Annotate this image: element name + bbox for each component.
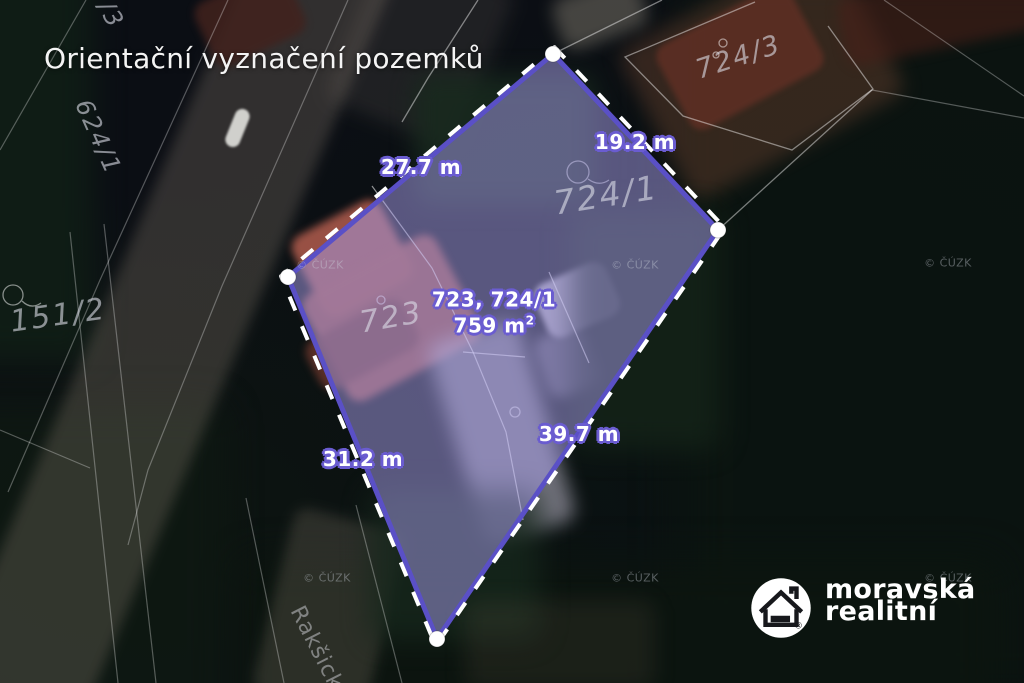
plot-area-text: 759 m2 xyxy=(432,311,556,337)
cuzk-watermark: © ČÚZK xyxy=(303,572,351,585)
cuzk-watermark: © ČÚZK xyxy=(924,257,972,270)
measurement-label-top-left: 27.7 m xyxy=(381,155,461,179)
map-canvas: Orientační vyznačení pozemků /3624/1151/… xyxy=(0,0,1024,683)
registered-mark: ® xyxy=(794,622,803,632)
house-logo-icon: ® xyxy=(750,577,812,639)
cuzk-watermark: © ČÚZK xyxy=(611,572,659,585)
vertex-dot xyxy=(545,46,561,62)
vertex-dot xyxy=(280,269,296,285)
agency-logo: ® moravská realitní xyxy=(750,577,975,639)
cuzk-watermark: © ČÚZK xyxy=(296,259,344,272)
measurement-label-left: 31.2 m xyxy=(323,447,403,471)
vertex-dot xyxy=(710,222,726,238)
page-title: Orientační vyznačení pozemků xyxy=(44,42,484,75)
cuzk-watermark: © ČÚZK xyxy=(611,259,659,272)
measurement-label-top-right: 19.2 m xyxy=(595,130,675,154)
plot-area-label: 723, 724/1 759 m2 xyxy=(432,290,556,337)
plot-number-text: 723, 724/1 xyxy=(432,290,556,311)
measurement-label-right: 39.7 m xyxy=(539,422,619,446)
agency-name: moravská realitní xyxy=(825,579,975,623)
vertex-dot xyxy=(429,631,445,647)
